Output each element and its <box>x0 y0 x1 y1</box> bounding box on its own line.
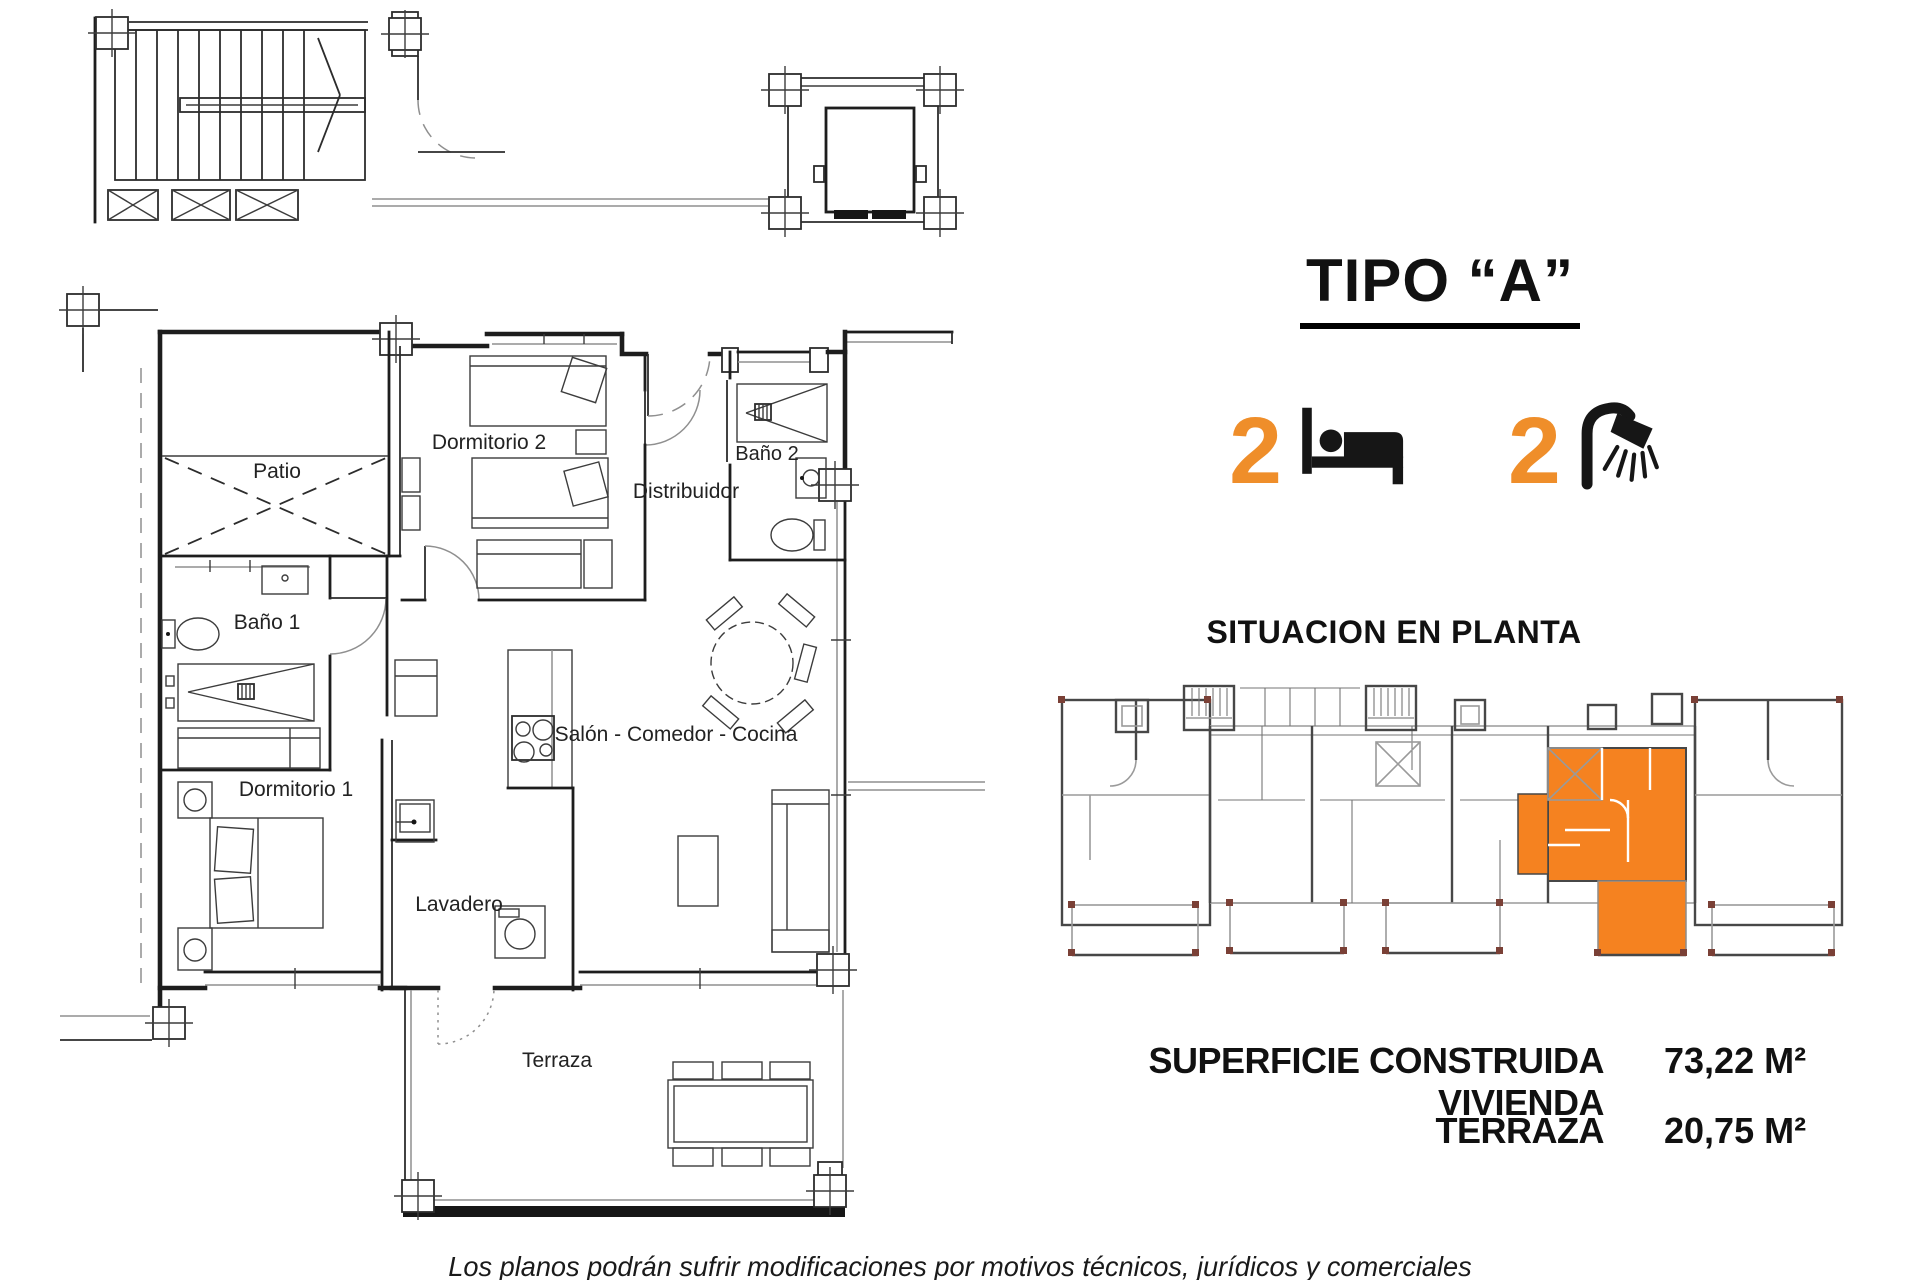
double-bed <box>210 818 323 928</box>
dormitorio2 <box>402 354 700 600</box>
banyo1 <box>162 556 386 770</box>
shower-tray-1 <box>166 664 314 721</box>
area-row-terraza: TERRAZA 20,75 M² <box>1000 1110 1806 1152</box>
room-label-distribuidor: Distribuidor <box>633 480 739 503</box>
area-value-terraza: 20,75 M² <box>1664 1110 1806 1152</box>
bedrooms-feature: 2 <box>1229 406 1416 491</box>
highlighted-terrace <box>1598 881 1686 955</box>
bathrooms-feature: 2 <box>1508 398 1661 491</box>
mini-stairs-2 <box>1366 686 1416 730</box>
terraza <box>394 988 854 1220</box>
nightstand <box>576 430 606 454</box>
shower-icon <box>1577 398 1661 491</box>
wardrobe-banyo1 <box>178 728 320 768</box>
kitchen-island <box>508 650 572 788</box>
corridor <box>372 199 768 206</box>
toilet-2 <box>771 519 825 551</box>
mini-elevator-1 <box>1116 700 1148 732</box>
area-label-terraza: TERRAZA <box>1000 1110 1604 1152</box>
mini-right-unit <box>1695 700 1842 955</box>
elevator <box>761 66 964 237</box>
type-title: TIPO “A” <box>1240 246 1640 329</box>
highlighted-unit <box>1518 748 1686 955</box>
single-bed-1 <box>470 356 607 426</box>
terrace-door <box>438 988 494 1044</box>
patio <box>160 332 420 572</box>
room-label-banyo1: Baño 1 <box>234 611 301 634</box>
entrance-door <box>648 354 710 416</box>
room-label-terraza: Terraza <box>522 1049 592 1072</box>
room-label-dormitorio1: Dormitorio 1 <box>239 778 353 801</box>
nightstand-bottom <box>178 928 212 970</box>
stair-shaft-boxes <box>108 190 298 220</box>
wardrobe-dorm2 <box>477 540 612 588</box>
footer-disclaimer: Los planos podrán sufrir modificaciones … <box>29 1251 1891 1280</box>
type-title-text: TIPO “A” <box>1300 246 1580 329</box>
room-label-patio: Patio <box>253 460 301 483</box>
sofa <box>772 790 829 952</box>
room-labels: Patio Dormitorio 2 Distribuidor Baño 2 B… <box>234 431 799 1072</box>
apartment-exterior-walls <box>59 286 985 1047</box>
toilet-1 <box>162 618 219 650</box>
nightstand-top <box>178 782 212 818</box>
bedrooms-count: 2 <box>1229 413 1282 491</box>
shower-tray-2 <box>737 384 827 442</box>
room-label-salon: Salón - Comedor - Cocina <box>555 723 798 746</box>
laundry-sink <box>396 800 434 842</box>
room-label-banyo2: Baño 2 <box>735 443 798 465</box>
features-row: 2 2 <box>1245 398 1645 491</box>
single-bed-2 <box>472 458 608 528</box>
mini-left-unit <box>1062 700 1210 955</box>
room-label-dormitorio2: Dormitorio 2 <box>432 431 546 454</box>
tall-cabinet <box>395 660 437 716</box>
bed-icon <box>1298 406 1416 491</box>
brochure-page: Patio Dormitorio 2 Distribuidor Baño 2 B… <box>0 0 1920 1280</box>
mini-top-box-2 <box>1652 694 1682 724</box>
situation-title: SITUACION EN PLANTA <box>1094 614 1694 651</box>
lavadero <box>392 788 580 990</box>
room-label-lavadero: Lavadero <box>415 893 503 916</box>
area-value-vivienda: 73,22 M² <box>1664 1040 1806 1082</box>
hob <box>512 716 554 760</box>
coffee-table <box>678 836 718 906</box>
situation-mini-plan <box>1050 680 1850 970</box>
stairwell <box>88 9 505 222</box>
vanity-1 <box>262 566 308 594</box>
dining-table <box>703 594 817 733</box>
terrace-table <box>668 1062 813 1166</box>
bathrooms-count: 2 <box>1508 413 1561 491</box>
mini-shaft-x <box>1376 742 1420 786</box>
